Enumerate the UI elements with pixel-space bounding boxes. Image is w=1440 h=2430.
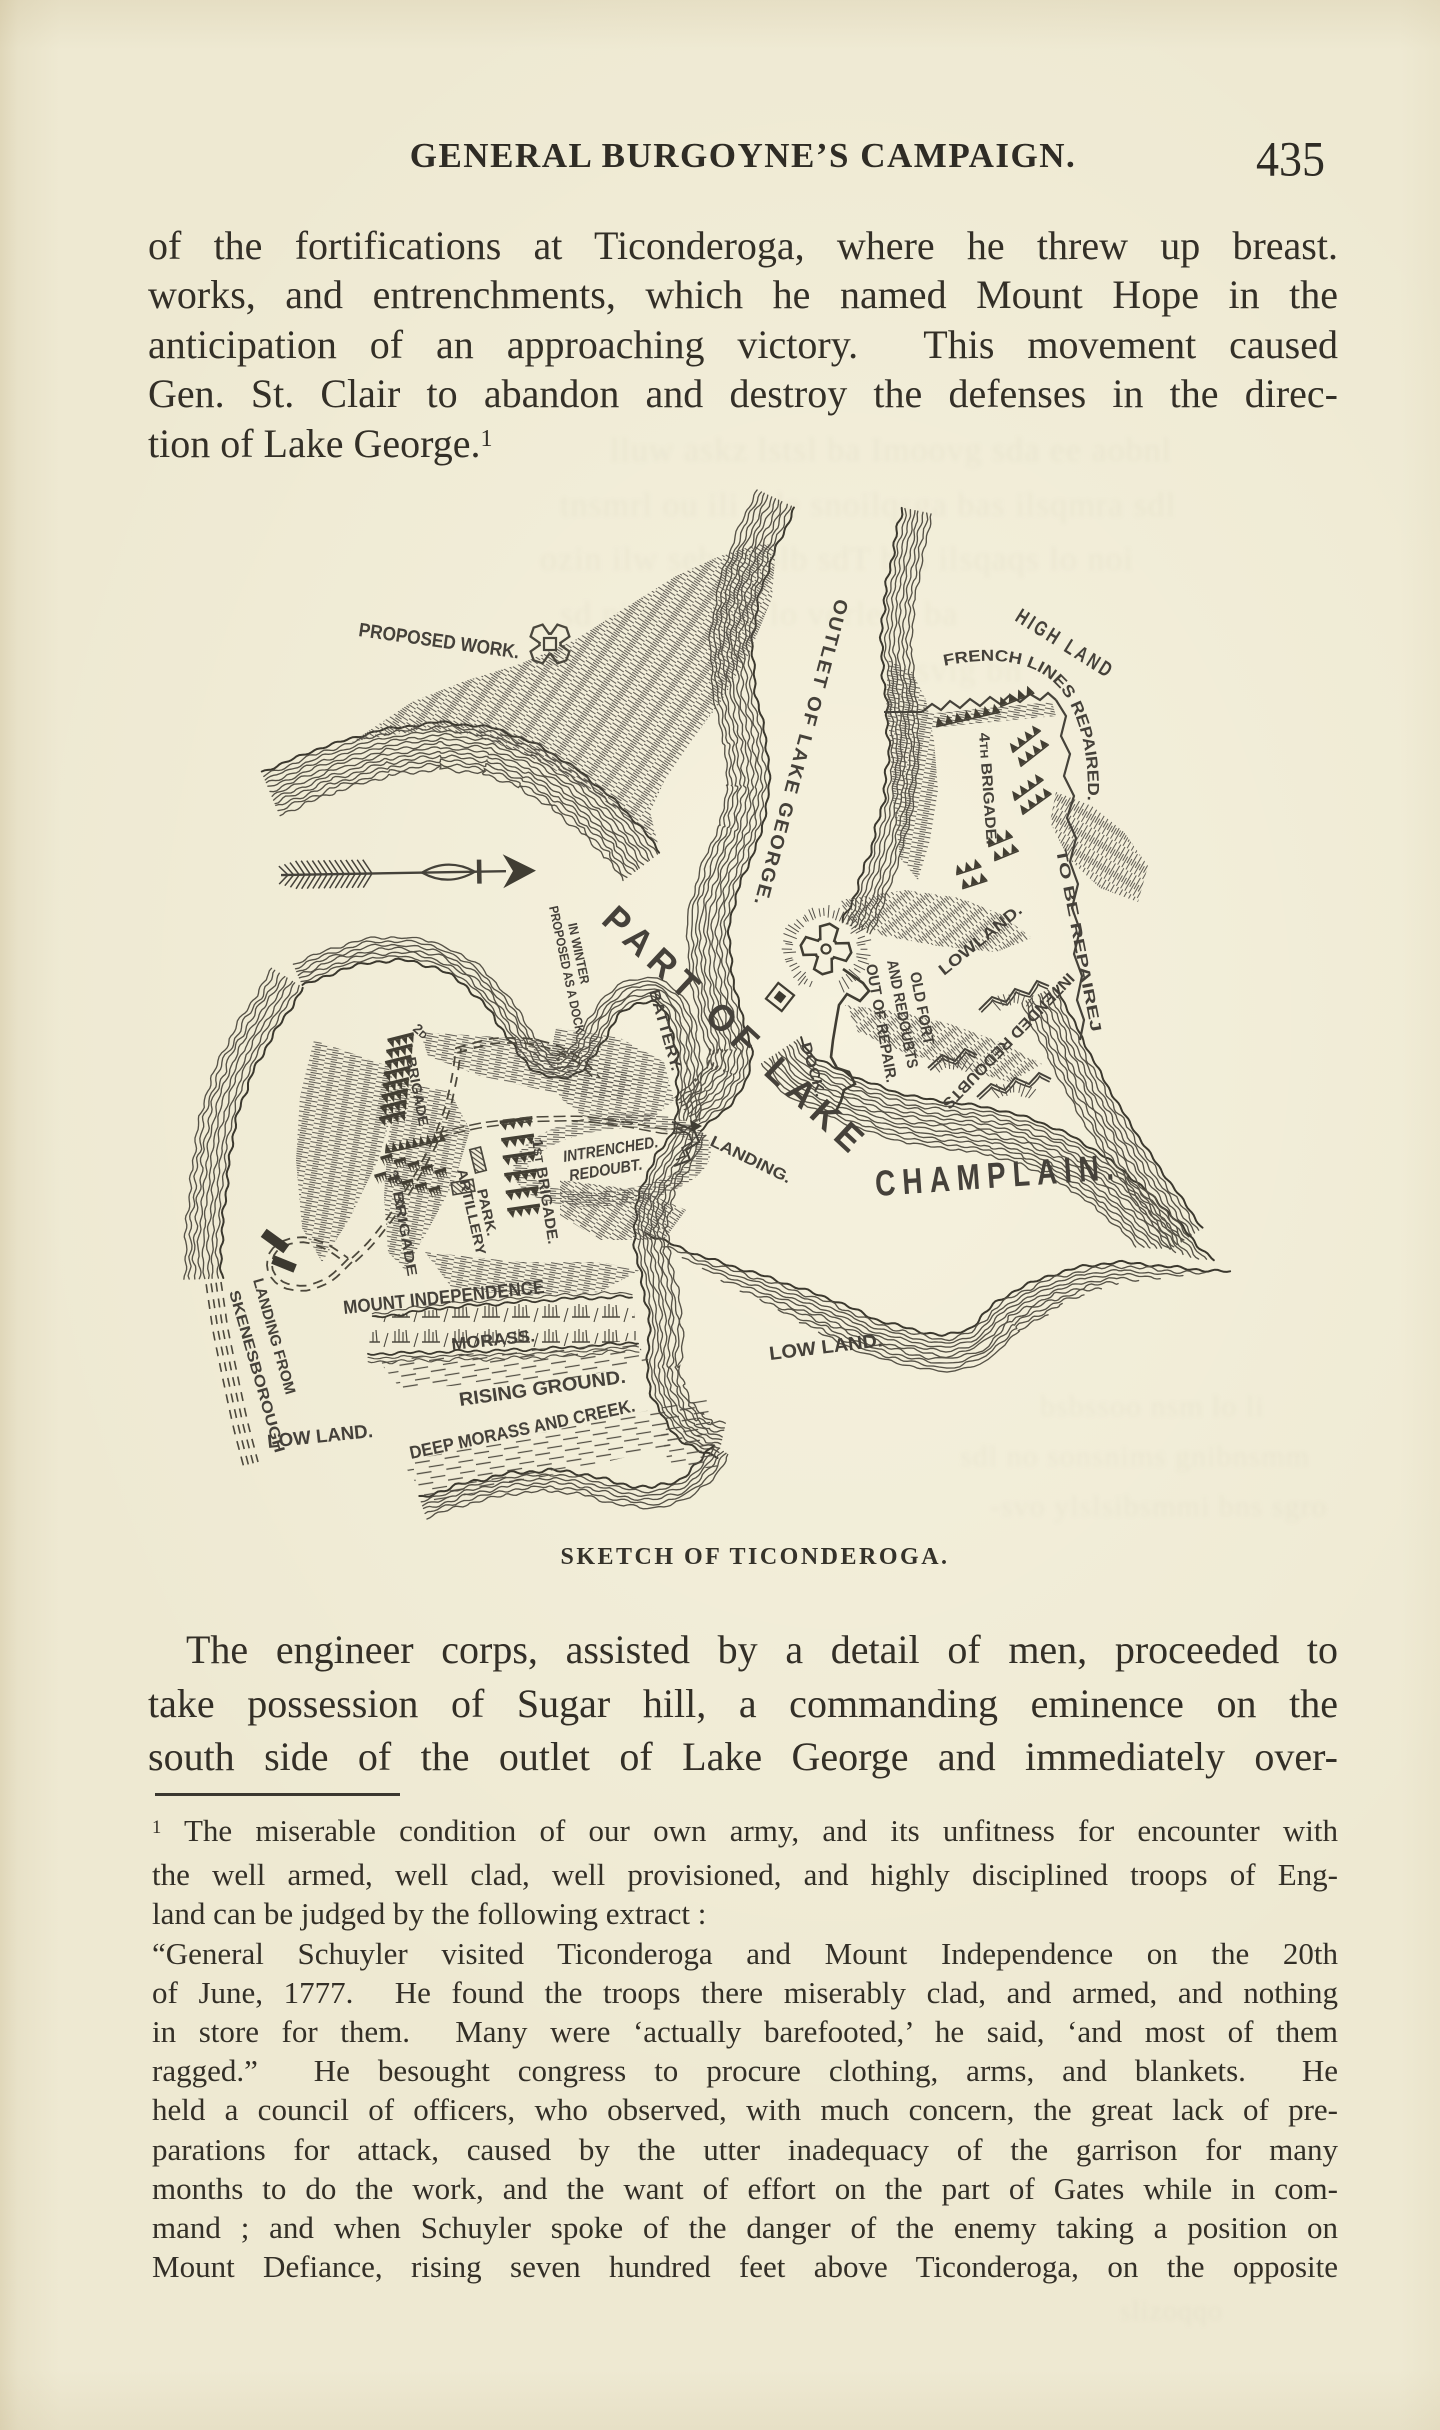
svg-text:OUTLET OF LAKE GEORGE.: OUTLET OF LAKE GEORGE. bbox=[749, 597, 852, 910]
svg-text:LANDING.: LANDING. bbox=[707, 1133, 794, 1187]
svg-text:FRENCH LINES REPAIRED.: FRENCH LINES REPAIRED. bbox=[942, 648, 1101, 801]
svg-text:4TH BRIGADE.: 4TH BRIGADE. bbox=[975, 732, 1000, 845]
svg-text:PROPOSED WORK.: PROPOSED WORK. bbox=[357, 619, 520, 663]
svg-text:HIGH LAND: HIGH LAND bbox=[1011, 605, 1118, 684]
svg-text:LOW LAND.: LOW LAND. bbox=[266, 1421, 374, 1453]
